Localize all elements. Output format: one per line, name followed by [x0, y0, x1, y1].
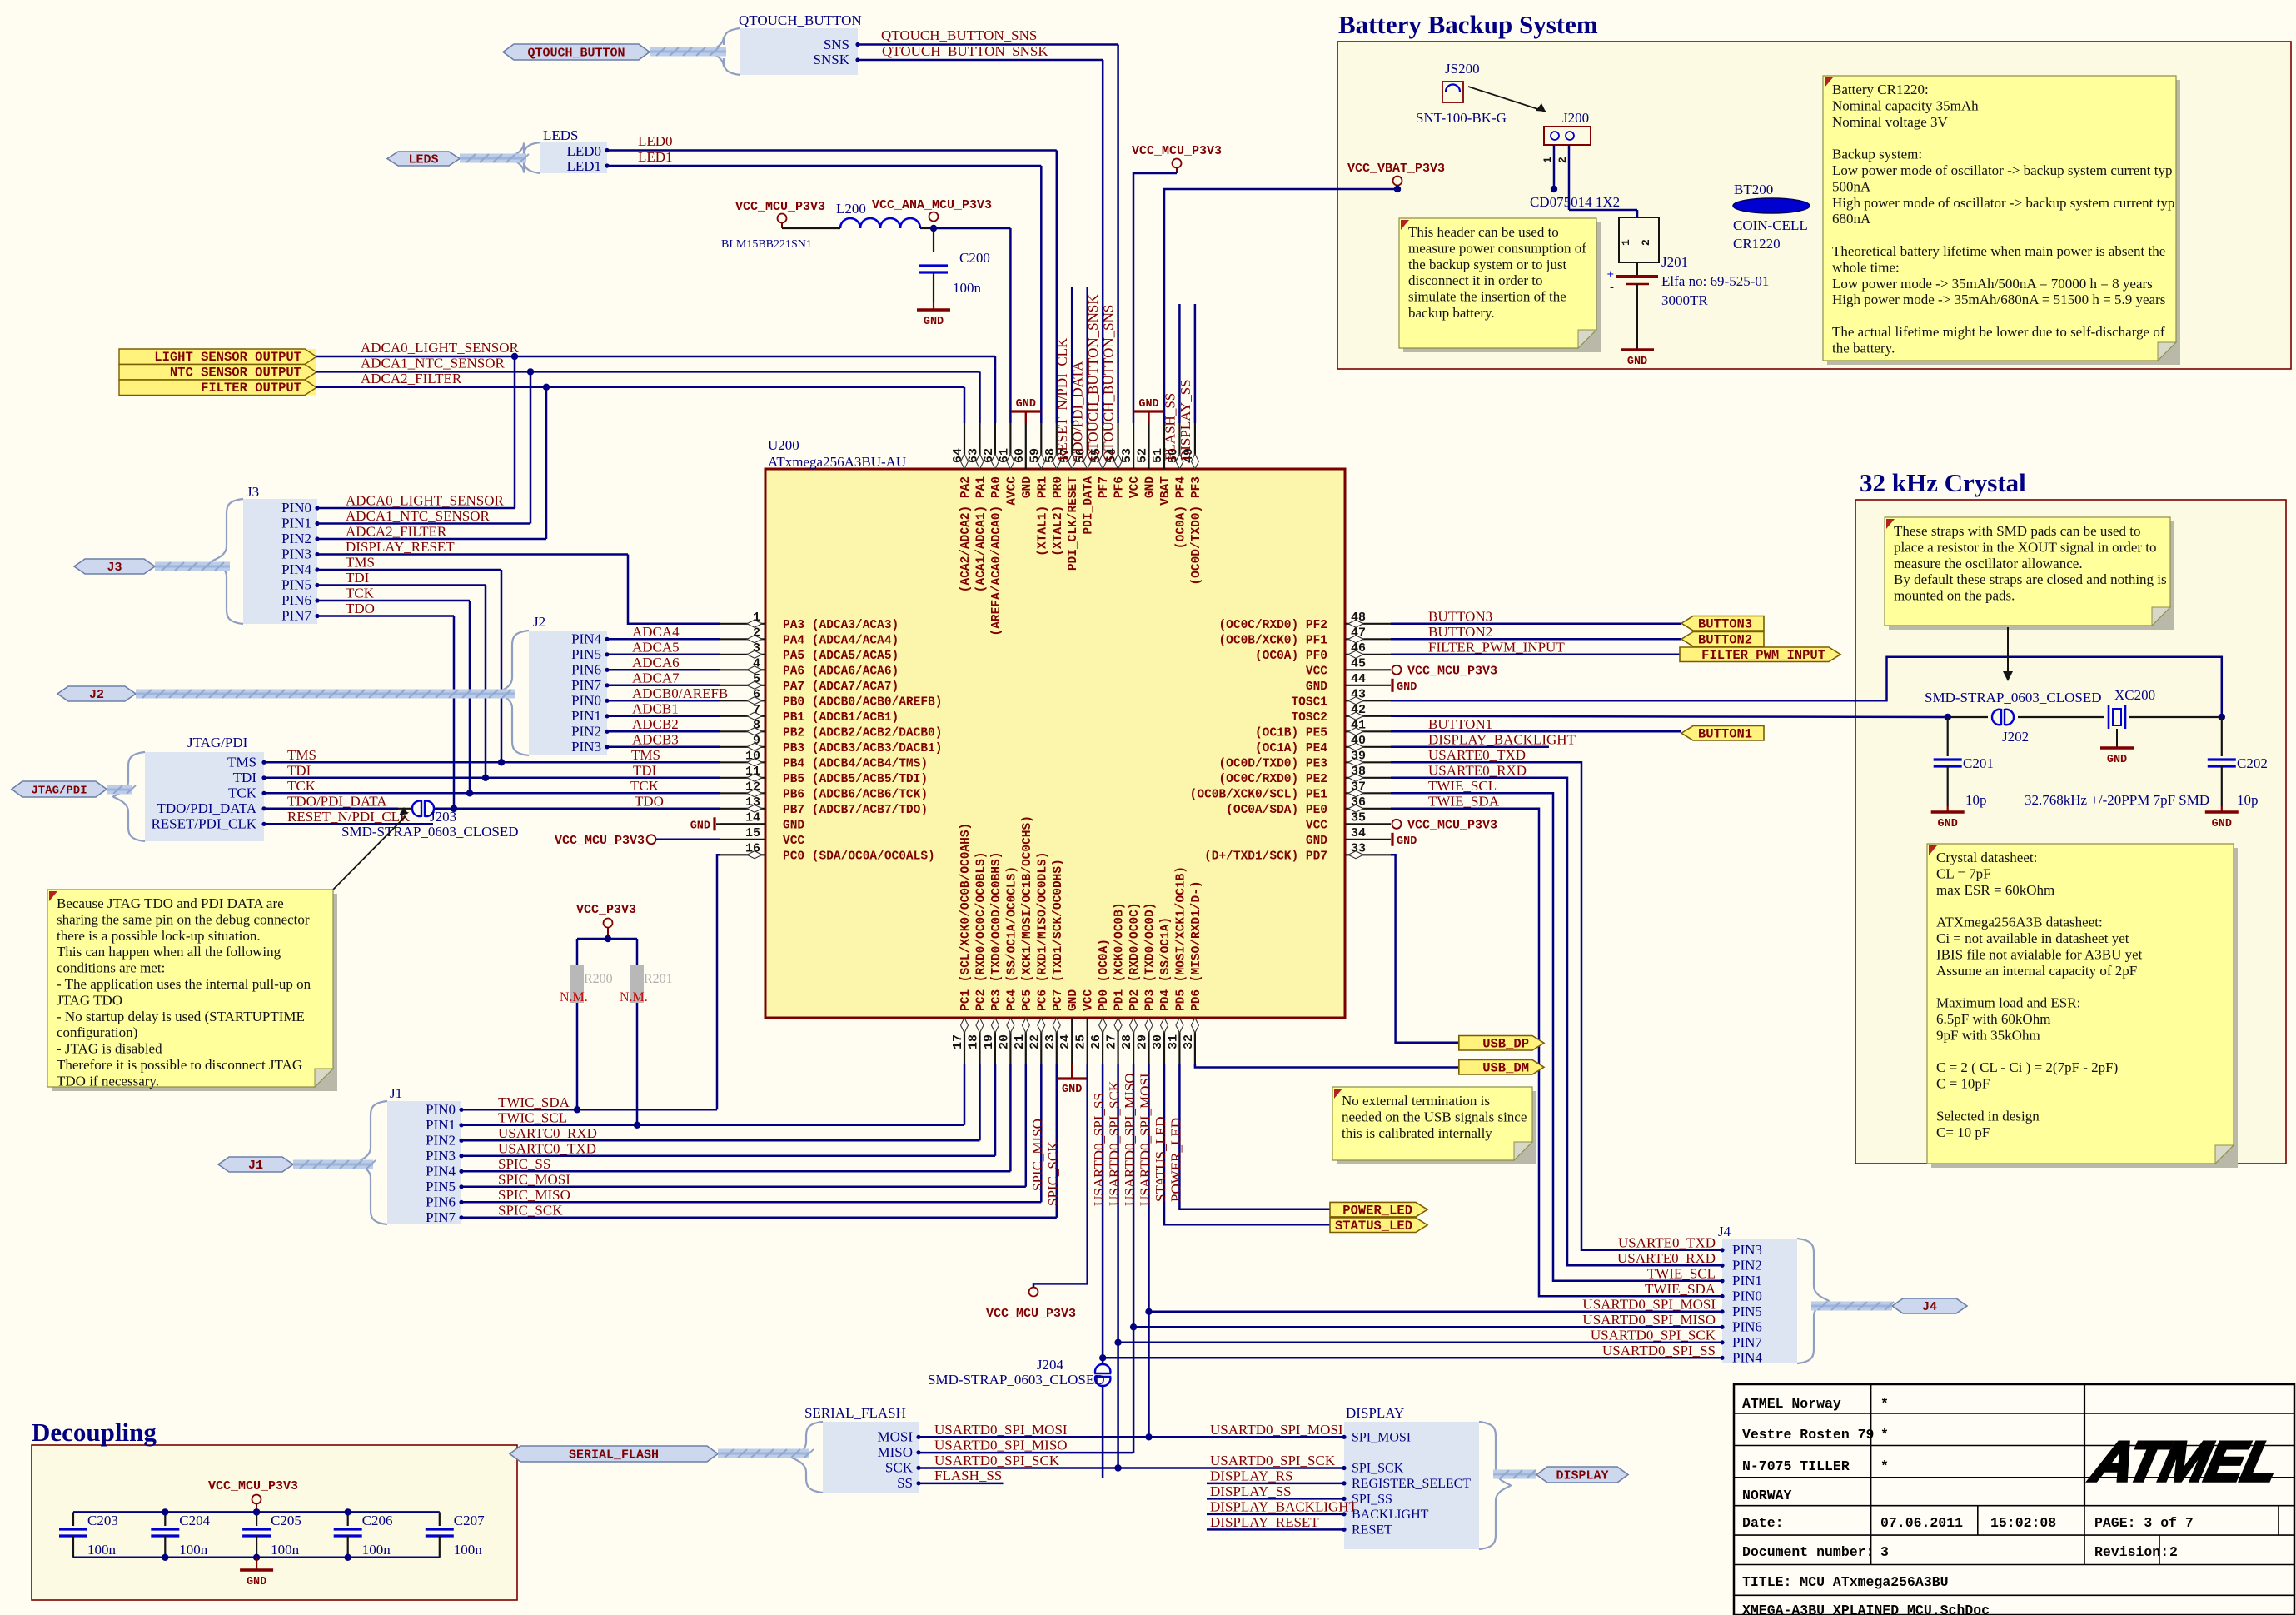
svg-text:9pF with 35kOhm: 9pF with 35kOhm [1936, 1027, 2040, 1043]
svg-text:configuration): configuration) [57, 1024, 137, 1040]
svg-text:BUTTON1: BUTTON1 [1428, 716, 1492, 732]
svg-text:(AREFA/ACA0/ADCA0) PA0: (AREFA/ACA0/ADCA0) PA0 [990, 476, 1004, 636]
svg-text:100n: 100n [271, 1542, 300, 1558]
svg-text:ADCB3: ADCB3 [632, 731, 679, 747]
svg-text:28: 28 [1120, 1034, 1134, 1049]
svg-text:PD1 (XCK0/OC0B): PD1 (XCK0/OC0B) [1113, 902, 1127, 1011]
svg-text:1: 1 [1620, 239, 1632, 246]
svg-text:LED0: LED0 [638, 133, 673, 149]
svg-text:PIN7: PIN7 [281, 608, 311, 624]
svg-text:U200: U200 [768, 437, 799, 453]
svg-text:SS: SS [897, 1475, 913, 1491]
svg-text:C202: C202 [2237, 755, 2268, 771]
svg-text:PIN3: PIN3 [1732, 1242, 1762, 1258]
svg-text:USARTD0_SPI_MISO: USARTD0_SPI_MISO [934, 1437, 1068, 1453]
svg-text:J1: J1 [390, 1085, 402, 1101]
svg-text:SPIC_SS: SPIC_SS [498, 1156, 550, 1172]
svg-text:2: 2 [2169, 1544, 2178, 1560]
svg-text:USB_DP: USB_DP [1482, 1037, 1529, 1052]
svg-text:TDI: TDI [633, 762, 657, 778]
svg-text:USARTD0_SPI_SCK: USARTD0_SPI_SCK [1591, 1327, 1716, 1343]
svg-text:this is calibrated internally: this is calibrated internally [1342, 1125, 1492, 1141]
svg-text:USARTD0_SPI_SS: USARTD0_SPI_SS [1091, 1093, 1107, 1206]
svg-text:TCK: TCK [228, 785, 257, 800]
svg-text:PC7 (TXD1/SCK/OC0DHS): PC7 (TXD1/SCK/OC0DHS) [1052, 859, 1065, 1011]
svg-text:VCC: VCC [1306, 665, 1327, 678]
svg-text:ADCA4: ADCA4 [632, 624, 680, 640]
svg-text:PA3 (ADCA3/ACA3): PA3 (ADCA3/ACA3) [783, 619, 899, 632]
svg-text:SMD-STRAP_0603_CLOSED: SMD-STRAP_0603_CLOSED [341, 824, 519, 840]
svg-text:Assume an internal capacity of: Assume an internal capacity of 2pF [1936, 963, 2137, 979]
svg-text:52: 52 [1136, 448, 1150, 463]
svg-text:*: * [1880, 1427, 1889, 1443]
svg-text:SPI_MOSI: SPI_MOSI [1352, 1430, 1411, 1444]
svg-text:IBIS file not avialable for A3: IBIS file not avialable for A3BU yet [1936, 946, 2143, 962]
svg-text:BLM15BB221SN1: BLM15BB221SN1 [721, 238, 812, 251]
svg-text:R200: R200 [584, 972, 613, 986]
svg-text:TMS: TMS [287, 747, 316, 763]
svg-text:ATXmega256A3B datasheet:: ATXmega256A3B datasheet: [1936, 915, 2103, 930]
svg-text:21: 21 [1013, 1034, 1027, 1049]
svg-text:60: 60 [1013, 448, 1027, 463]
svg-text:XC200: XC200 [2114, 687, 2155, 703]
svg-text:High power mode -> 35mAh/680nA: High power mode -> 35mAh/680nA = 51500 h… [1832, 292, 2165, 307]
svg-text:C205: C205 [271, 1513, 301, 1528]
svg-text:QTOUCH_BUTTON_SNS: QTOUCH_BUTTON_SNS [1101, 305, 1117, 461]
svg-text:USARTD0_SPI_MOSI: USARTD0_SPI_MOSI [1582, 1296, 1716, 1312]
svg-text:REGISTER_SELECT: REGISTER_SELECT [1352, 1477, 1471, 1491]
svg-text:LIGHT SENSOR OUTPUT: LIGHT SENSOR OUTPUT [154, 350, 301, 365]
svg-text:TITLE: MCU ATxmega256A3BU: TITLE: MCU ATxmega256A3BU [1742, 1574, 1949, 1590]
svg-text:TWIE_SCL: TWIE_SCL [1428, 778, 1497, 794]
svg-text:BUTTON1: BUTTON1 [1698, 727, 1752, 742]
svg-text:VCC_MCU_P3V3: VCC_MCU_P3V3 [555, 834, 645, 848]
svg-text:PIN5: PIN5 [1732, 1303, 1762, 1319]
svg-text:PC3 (TXD0/OC0D/OC0BHS): PC3 (TXD0/OC0D/OC0BHS) [990, 852, 1004, 1011]
svg-text:(OC1A) PE4: (OC1A) PE4 [1255, 742, 1327, 755]
svg-text:USARTE0_TXD: USARTE0_TXD [1428, 747, 1526, 763]
svg-text:N.M.: N.M. [620, 990, 648, 1004]
svg-text:PDI_DATA: PDI_DATA [1083, 476, 1096, 535]
svg-text:PB3 (ADCB3/ACB3/DACB1): PB3 (ADCB3/ACB3/DACB1) [783, 742, 942, 755]
svg-text:C203: C203 [87, 1513, 118, 1528]
svg-text:there is a possible lock-up si: there is a possible lock-up situation. [57, 928, 261, 944]
svg-text:PC5 (XCK1/MOSI/OC1B/OC0CHS): PC5 (XCK1/MOSI/OC1B/OC0CHS) [1021, 815, 1034, 1011]
svg-text:+: + [1606, 268, 1614, 282]
svg-text:DISPLAY_RESET: DISPLAY_RESET [1210, 1514, 1319, 1530]
svg-text:2: 2 [1556, 157, 1569, 163]
svg-text:GND: GND [924, 316, 944, 328]
svg-text:POWER_LED: POWER_LED [1342, 1203, 1412, 1218]
svg-text:ADCB1: ADCB1 [632, 700, 679, 716]
svg-text:LEDS: LEDS [408, 153, 438, 167]
svg-text:GND: GND [247, 1576, 266, 1588]
svg-text:DISPLAY_BACKLIGHT: DISPLAY_BACKLIGHT [1210, 1498, 1358, 1514]
svg-text:PD2 (RXD0/OC0C): PD2 (RXD0/OC0C) [1128, 902, 1142, 1011]
svg-text:FILTER_PWM_INPUT: FILTER_PWM_INPUT [1701, 648, 1825, 663]
svg-text:SPIC_MISO: SPIC_MISO [1029, 1119, 1045, 1191]
svg-text:RESET_N/PDI_CLK: RESET_N/PDI_CLK [1054, 337, 1070, 461]
svg-text:N.M.: N.M. [560, 990, 588, 1004]
svg-text:PIN4: PIN4 [1732, 1349, 1762, 1365]
svg-text:(OC1B) PE5: (OC1B) PE5 [1255, 726, 1327, 740]
svg-text:Document number:: Document number: [1742, 1544, 1874, 1560]
svg-text:DISPLAY_RESET: DISPLAY_RESET [346, 539, 455, 555]
svg-text:QTOUCH_BUTTON_SNSK: QTOUCH_BUTTON_SNSK [882, 43, 1048, 59]
svg-text:C200: C200 [959, 250, 990, 266]
svg-text:Crystal datasheet:: Crystal datasheet: [1936, 850, 2037, 865]
svg-text:PAGE: 3 of 7: PAGE: 3 of 7 [2094, 1515, 2194, 1531]
svg-text:(ACA2/ADCA2) PA2: (ACA2/ADCA2) PA2 [959, 476, 973, 592]
svg-text:(XTAL2) PR0: (XTAL2) PR0 [1052, 476, 1065, 556]
svg-text:DISPLAY_BACKLIGHT: DISPLAY_BACKLIGHT [1428, 731, 1576, 747]
svg-text:USARTE0_RXD: USARTE0_RXD [1617, 1250, 1716, 1266]
svg-text:VCC_MCU_P3V3: VCC_MCU_P3V3 [986, 1307, 1076, 1321]
svg-text:VCC_MCU_P3V3: VCC_MCU_P3V3 [208, 1479, 298, 1493]
svg-text:VCC_ANA_MCU_P3V3: VCC_ANA_MCU_P3V3 [872, 198, 992, 212]
svg-text:FLASH_SS: FLASH_SS [934, 1468, 1002, 1483]
svg-text:BUTTON3: BUTTON3 [1428, 608, 1492, 624]
svg-text:PC0 (SDA/OC0A/OC0ALS): PC0 (SDA/OC0A/OC0ALS) [783, 850, 935, 863]
svg-text:PD0 (OC0A): PD0 (OC0A) [1098, 939, 1111, 1011]
svg-text:J4: J4 [1922, 1300, 1937, 1314]
svg-text:PD5 (MOSI/XCK1/OC1B): PD5 (MOSI/XCK1/OC1B) [1174, 866, 1188, 1011]
svg-text:MOSI: MOSI [877, 1428, 913, 1444]
svg-text:JTAG/PDI: JTAG/PDI [187, 735, 248, 750]
svg-text:PB2 (ADCB2/ACB2/DACB0): PB2 (ADCB2/ACB2/DACB0) [783, 726, 942, 740]
svg-text:Elfa no: 69-525-01: Elfa no: 69-525-01 [1661, 273, 1769, 289]
svg-text:PIN6: PIN6 [281, 592, 311, 608]
svg-text:LED1: LED1 [566, 158, 601, 174]
svg-text:GND: GND [1627, 356, 1647, 368]
svg-text:PB1 (ADCB1/ACB1): PB1 (ADCB1/ACB1) [783, 711, 899, 725]
svg-text:LED1: LED1 [638, 149, 673, 165]
svg-text:TOSC1: TOSC1 [1291, 695, 1327, 709]
svg-text:PD3 (TXD0/OC0D): PD3 (TXD0/OC0D) [1144, 902, 1158, 1011]
svg-text:ADCA6: ADCA6 [632, 655, 680, 670]
svg-text:VCC: VCC [783, 835, 804, 848]
svg-text:JTAG TDO: JTAG TDO [57, 992, 122, 1008]
svg-text:disconnect it in order to: disconnect it in order to [1408, 272, 1542, 288]
svg-text:GND: GND [1062, 1084, 1082, 1096]
svg-text:TDO: TDO [635, 793, 664, 809]
svg-text:PIN5: PIN5 [571, 646, 601, 662]
svg-text:1: 1 [1541, 157, 1554, 163]
svg-text:100n: 100n [362, 1542, 391, 1558]
svg-text:simulate the insertion of the: simulate the insertion of the [1408, 289, 1566, 305]
svg-text:No external termination is: No external termination is [1342, 1093, 1490, 1109]
svg-text:Therefore it is possible to di: Therefore it is possible to disconnect J… [57, 1057, 302, 1073]
svg-text:(OC0C/RXD0) PE2: (OC0C/RXD0) PE2 [1218, 773, 1327, 786]
svg-text:J200: J200 [1562, 110, 1589, 126]
svg-text:sharing the same pin on the de: sharing the same pin on the debug connec… [57, 911, 310, 927]
svg-text:GND: GND [2212, 818, 2232, 830]
svg-text:TCK: TCK [630, 778, 660, 794]
svg-text:PIN1: PIN1 [1732, 1273, 1762, 1289]
svg-text:PIN4: PIN4 [571, 631, 601, 646]
svg-text:17: 17 [951, 1034, 965, 1049]
svg-text:PIN4: PIN4 [281, 561, 311, 577]
svg-text:TDO: TDO [346, 601, 375, 616]
svg-text:PIN0: PIN0 [281, 500, 311, 516]
svg-text:Ci = not available in datashee: Ci = not available in datasheet yet [1936, 930, 2129, 946]
svg-text:TWIC_SCL: TWIC_SCL [498, 1109, 567, 1125]
svg-text:GND: GND [1138, 398, 1158, 411]
svg-text:29: 29 [1136, 1034, 1150, 1049]
svg-text:23: 23 [1043, 1034, 1058, 1049]
svg-text:NTC SENSOR OUTPUT: NTC SENSOR OUTPUT [170, 366, 301, 381]
svg-text:DISPLAY_RS: DISPLAY_RS [1210, 1468, 1293, 1483]
svg-text:N-7075 TILLER: N-7075 TILLER [1742, 1458, 1850, 1474]
svg-text:GND: GND [1306, 680, 1327, 694]
svg-text:USARTD0_SPI_SCK: USARTD0_SPI_SCK [1210, 1453, 1336, 1468]
svg-text:SCK: SCK [885, 1459, 914, 1475]
svg-text:SPIC_SCK: SPIC_SCK [498, 1202, 563, 1218]
svg-text:TOSC2: TOSC2 [1291, 711, 1327, 725]
svg-text:DISPLAY: DISPLAY [1346, 1405, 1404, 1421]
svg-text:Vestre Rosten 79: Vestre Rosten 79 [1742, 1427, 1874, 1443]
svg-text:backup battery.: backup battery. [1408, 305, 1495, 321]
svg-text:PIN3: PIN3 [281, 546, 311, 562]
svg-text:SPIC_MOSI: SPIC_MOSI [498, 1171, 570, 1187]
svg-text:J2: J2 [89, 688, 104, 702]
svg-text:15:02:08: 15:02:08 [1990, 1515, 2056, 1531]
svg-text:This header can be used to: This header can be used to [1408, 224, 1559, 240]
svg-text:needed on the USB signals sinc: needed on the USB signals since [1342, 1109, 1527, 1124]
svg-text:ADCA7: ADCA7 [632, 670, 680, 685]
svg-text:J3: J3 [107, 561, 122, 575]
svg-text:USARTC0_TXD: USARTC0_TXD [498, 1140, 596, 1156]
svg-text:PIN1: PIN1 [426, 1117, 456, 1133]
svg-text:Nominal voltage 3V: Nominal voltage 3V [1832, 114, 1949, 130]
svg-text:QTOUCH_BUTTON_SNSK: QTOUCH_BUTTON_SNSK [1085, 294, 1101, 461]
svg-text:PIN5: PIN5 [426, 1179, 456, 1194]
svg-text:ADCB2: ADCB2 [632, 716, 679, 732]
svg-text:SNSK: SNSK [814, 52, 850, 67]
svg-text:C = 10pF: C = 10pF [1936, 1076, 1990, 1092]
svg-text:VBAT: VBAT [1159, 476, 1173, 506]
svg-text:SERIAL_FLASH: SERIAL_FLASH [569, 1448, 659, 1463]
svg-text:ATMEL: ATMEL [2084, 1430, 2284, 1493]
svg-text:ADCA5: ADCA5 [632, 639, 680, 655]
svg-text:32 kHz Crystal: 32 kHz Crystal [1860, 468, 2026, 497]
svg-text:J2: J2 [533, 614, 545, 630]
svg-text:TWIE_SDA: TWIE_SDA [1428, 793, 1500, 809]
svg-text:- The application uses the int: - The application uses the internal pull… [57, 976, 311, 992]
svg-text:100n: 100n [179, 1542, 208, 1558]
svg-text:VCC_P3V3: VCC_P3V3 [576, 903, 636, 917]
svg-text:Low power mode -> 35mAh/500nA: Low power mode -> 35mAh/500nA = 70000 h … [1832, 276, 2153, 292]
svg-text:RESET_N/PDI_CLK: RESET_N/PDI_CLK [287, 809, 411, 825]
svg-text:Date:: Date: [1742, 1515, 1784, 1531]
svg-text:PB5 (ADCB5/ACB5/TDI): PB5 (ADCB5/ACB5/TDI) [783, 773, 928, 786]
svg-text:PIN3: PIN3 [571, 739, 601, 755]
svg-text:BUTTON3: BUTTON3 [1698, 617, 1752, 632]
svg-text:100n: 100n [454, 1542, 483, 1558]
svg-text:PB7 (ADCB7/ACB7/TDO): PB7 (ADCB7/ACB7/TDO) [783, 804, 928, 817]
svg-text:VCC: VCC [1306, 819, 1327, 832]
svg-text:100n: 100n [953, 280, 982, 296]
svg-text:18: 18 [966, 1034, 980, 1049]
svg-text:45: 45 [1351, 656, 1366, 670]
svg-text:-: - [1610, 281, 1614, 294]
svg-text:PF7: PF7 [1098, 476, 1111, 498]
svg-text:mounted on the pads.: mounted on the pads. [1894, 588, 2015, 604]
svg-text:PA5 (ADCA5/ACA5): PA5 (ADCA5/ACA5) [783, 650, 899, 663]
svg-text:Decoupling: Decoupling [32, 1418, 157, 1447]
svg-text:USARTD0_SPI_MOSI: USARTD0_SPI_MOSI [1138, 1073, 1153, 1206]
svg-text:R201: R201 [644, 972, 673, 986]
svg-text:measure power consumption of: measure power consumption of [1408, 240, 1586, 256]
svg-text:DISPLAY_SS: DISPLAY_SS [1210, 1483, 1292, 1499]
svg-text:PIN7: PIN7 [571, 677, 601, 693]
svg-text:USARTC0_RXD: USARTC0_RXD [498, 1125, 597, 1141]
svg-text:J204: J204 [1037, 1357, 1064, 1373]
svg-text:FILTER_PWM_INPUT: FILTER_PWM_INPUT [1428, 639, 1565, 655]
svg-text:10p: 10p [1965, 792, 1987, 808]
svg-text:TWIE_SCL: TWIE_SCL [1647, 1265, 1716, 1281]
svg-text:TDI: TDI [287, 762, 311, 778]
svg-text:LED0: LED0 [566, 143, 601, 159]
svg-text:C206: C206 [362, 1513, 393, 1528]
svg-text:PC6 (RXD1/MISO/OC0DLS): PC6 (RXD1/MISO/OC0DLS) [1036, 852, 1049, 1011]
svg-text:*: * [1880, 1396, 1889, 1412]
svg-text:31: 31 [1166, 1034, 1180, 1049]
svg-text:QTOUCH_BUTTON: QTOUCH_BUTTON [739, 12, 862, 28]
svg-text:(OC0D/TXD0) PF3: (OC0D/TXD0) PF3 [1190, 476, 1203, 586]
svg-text:ADCA1_NTC_SENSOR: ADCA1_NTC_SENSOR [346, 508, 491, 524]
svg-text:measure the oscillator allowan: measure the oscillator allowance. [1894, 556, 2083, 571]
svg-text:STATUS_LED: STATUS_LED [1335, 1219, 1412, 1234]
svg-text:PC1 (SCL/XCK0/OC0B/OC0AHS): PC1 (SCL/XCK0/OC0B/OC0AHS) [959, 823, 973, 1011]
svg-text:GND: GND [783, 819, 804, 832]
svg-text:the backup system or to just: the backup system or to just [1408, 257, 1567, 272]
svg-text:These straps with SMD pads can: These straps with SMD pads can be used t… [1894, 523, 2141, 539]
svg-text:PIN2: PIN2 [426, 1132, 456, 1148]
svg-text:XMEGA-A3BU_XPLAINED_MCU.SchDoc: XMEGA-A3BU_XPLAINED_MCU.SchDoc [1742, 1603, 1990, 1615]
svg-text:Nominal capacity 35mAh: Nominal capacity 35mAh [1832, 97, 1979, 113]
svg-text:VCC_VBAT_P3V3: VCC_VBAT_P3V3 [1347, 162, 1445, 176]
svg-text:ADCA0_LIGHT_SENSOR: ADCA0_LIGHT_SENSOR [361, 340, 520, 356]
svg-text:2: 2 [1640, 239, 1652, 246]
svg-text:TDO/PDI_DATA: TDO/PDI_DATA [287, 793, 387, 809]
svg-text:- JTAG is disabled: - JTAG is disabled [57, 1041, 162, 1057]
svg-text:6.5pF with 60kOhm: 6.5pF with 60kOhm [1936, 1011, 2050, 1027]
svg-text:TDI: TDI [233, 770, 257, 785]
svg-text:USARTD0_SPI_MISO: USARTD0_SPI_MISO [1122, 1073, 1138, 1206]
svg-text:USARTD0_SPI_MOSI: USARTD0_SPI_MOSI [934, 1422, 1068, 1438]
svg-text:By default these straps are cl: By default these straps are closed and n… [1894, 571, 2167, 587]
svg-text:PC2 (RXD0/OC0C/OC0BLS): PC2 (RXD0/OC0C/OC0BLS) [974, 852, 988, 1011]
svg-text:GND: GND [1016, 398, 1036, 411]
svg-text:PB4 (ADCB4/ACB4/TMS): PB4 (ADCB4/ACB4/TMS) [783, 757, 928, 770]
svg-text:VCC: VCC [1128, 476, 1142, 498]
svg-text:TMS: TMS [631, 747, 660, 763]
svg-text:25: 25 [1074, 1034, 1088, 1049]
svg-text:BT200: BT200 [1734, 182, 1773, 197]
svg-text:CL = 7pF: CL = 7pF [1936, 865, 1991, 881]
svg-text:C201: C201 [1963, 755, 1994, 771]
svg-text:AVCC: AVCC [1005, 476, 1019, 506]
svg-text:10p: 10p [2237, 792, 2259, 808]
svg-text:VCC_MCU_P3V3: VCC_MCU_P3V3 [1407, 664, 1497, 678]
svg-text:(OC0A/SDA) PE0: (OC0A/SDA) PE0 [1226, 804, 1327, 817]
svg-text:J1: J1 [248, 1159, 263, 1173]
svg-text:PIN7: PIN7 [1732, 1334, 1762, 1350]
svg-text:(OC0B/XCK0/SCL) PE1: (OC0B/XCK0/SCL) PE1 [1190, 788, 1328, 801]
svg-text:RESET: RESET [1352, 1523, 1392, 1537]
svg-text:max ESR = 60kOhm: max ESR = 60kOhm [1936, 882, 2054, 898]
svg-text:USARTD0_SPI_MOSI: USARTD0_SPI_MOSI [1210, 1422, 1343, 1438]
svg-text:GND: GND [1397, 835, 1417, 848]
svg-text:PB0 (ADCB0/ACB0/AREFB): PB0 (ADCB0/ACB0/AREFB) [783, 695, 942, 709]
svg-text:PB6 (ADCB6/ACB6/TCK): PB6 (ADCB6/ACB6/TCK) [783, 788, 928, 801]
svg-text:USARTD0_SPI_SS: USARTD0_SPI_SS [1602, 1343, 1716, 1358]
svg-text:USARTD0_SPI_SCK: USARTD0_SPI_SCK [1107, 1080, 1123, 1206]
svg-text:place a resistor in the XOUT s: place a resistor in the XOUT signal in o… [1894, 539, 2157, 555]
svg-text:15: 15 [745, 826, 760, 840]
svg-text:PF6: PF6 [1113, 476, 1127, 498]
svg-text:35: 35 [1351, 810, 1366, 825]
svg-text:VCC_MCU_P3V3: VCC_MCU_P3V3 [1407, 818, 1497, 832]
svg-text:USARTE0_TXD: USARTE0_TXD [1618, 1234, 1716, 1250]
svg-text:PIN7: PIN7 [426, 1209, 456, 1225]
svg-text:BUTTON2: BUTTON2 [1698, 633, 1752, 648]
svg-text:FLASH_SS: FLASH_SS [1162, 393, 1178, 461]
svg-text:GND: GND [1306, 835, 1327, 848]
svg-text:- No startup delay is used (ST: - No startup delay is used (STARTUPTIME [57, 1009, 305, 1024]
svg-text:(D+/TXD1/SCK) PD7: (D+/TXD1/SCK) PD7 [1204, 850, 1327, 863]
svg-text:(OC0B/XCK0) PF1: (OC0B/XCK0) PF1 [1218, 634, 1327, 647]
svg-text:ADCA1_NTC_SENSOR: ADCA1_NTC_SENSOR [361, 355, 506, 371]
svg-text:PD4 (SS/OC1A): PD4 (SS/OC1A) [1159, 917, 1173, 1011]
svg-text:Backup system:: Backup system: [1832, 147, 1922, 162]
svg-text:SPIC_SCK: SPIC_SCK [1045, 1141, 1061, 1206]
svg-text:PIN0: PIN0 [571, 692, 601, 708]
svg-text:conditions are met:: conditions are met: [57, 960, 165, 976]
svg-text:ATMEL Norway: ATMEL Norway [1742, 1396, 1841, 1412]
svg-text:the battery.: the battery. [1832, 340, 1895, 356]
svg-text:GND: GND [1938, 818, 1958, 830]
svg-text:VCC: VCC [1083, 989, 1096, 1011]
svg-text:(OC0C/RXD0) PF2: (OC0C/RXD0) PF2 [1218, 619, 1327, 632]
svg-text:ADCA0_LIGHT_SENSOR: ADCA0_LIGHT_SENSOR [346, 493, 505, 509]
svg-text:MISO: MISO [877, 1444, 913, 1460]
svg-text:L200: L200 [836, 201, 866, 217]
svg-text:20: 20 [997, 1034, 1011, 1049]
svg-text:PIN2: PIN2 [281, 531, 311, 546]
svg-text:PA6 (ADCA6/ACA6): PA6 (ADCA6/ACA6) [783, 665, 899, 678]
svg-text:FILTER OUTPUT: FILTER OUTPUT [201, 381, 301, 396]
svg-text:27: 27 [1105, 1034, 1119, 1049]
svg-text:PIN6: PIN6 [571, 661, 601, 677]
svg-text:PD6 (MISO/RXD1/D-): PD6 (MISO/RXD1/D-) [1190, 880, 1203, 1011]
svg-text:USARTD0_SPI_MISO: USARTD0_SPI_MISO [1582, 1312, 1716, 1328]
svg-text:JS200: JS200 [1445, 61, 1480, 77]
svg-text:19: 19 [982, 1034, 996, 1049]
svg-text:(OC0A) PF0: (OC0A) PF0 [1255, 650, 1327, 663]
svg-text:GND: GND [1021, 476, 1034, 498]
svg-text:PA4 (ADCA4/ACA4): PA4 (ADCA4/ACA4) [783, 634, 899, 647]
svg-text:GND: GND [1067, 989, 1080, 1011]
svg-text:3: 3 [1880, 1544, 1889, 1560]
svg-text:PIN1: PIN1 [571, 708, 601, 724]
svg-text:RESET/PDI_CLK: RESET/PDI_CLK [151, 815, 256, 831]
svg-text:SMD-STRAP_0603_CLOSED: SMD-STRAP_0603_CLOSED [1925, 690, 2102, 705]
svg-text:30: 30 [1151, 1034, 1165, 1049]
svg-text:COIN-CELL: COIN-CELL [1733, 217, 1808, 233]
svg-text:32: 32 [1182, 1034, 1196, 1049]
